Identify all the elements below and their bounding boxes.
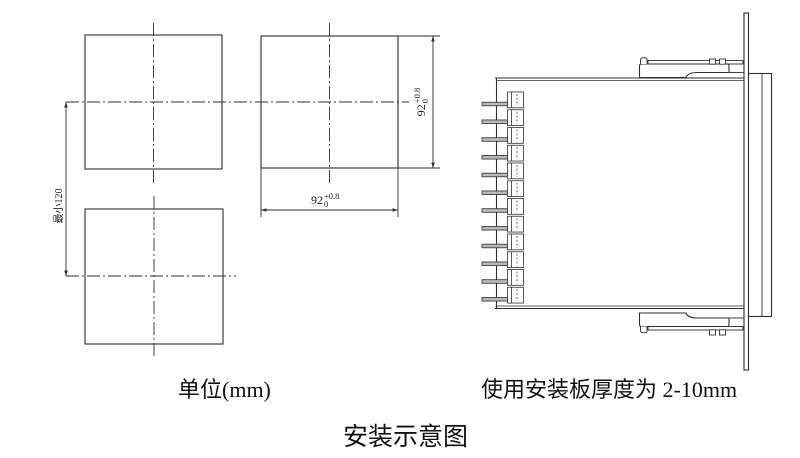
unit-caption: 单位(mm) (178, 372, 271, 404)
bracket-screw-head (641, 327, 648, 333)
terminal-clamp-bar (482, 173, 508, 177)
cutout-spacing-view (64, 23, 409, 356)
bracket-nut (710, 59, 716, 64)
mounting-bracket-bottom (640, 313, 746, 335)
terminal-clamp-bar (482, 155, 508, 159)
terminal-clamp-bar (482, 120, 508, 124)
meter-case (495, 78, 745, 309)
dimension-label-cutout-width: 92 +0.8 0 (311, 192, 339, 208)
installation-diagram: 最小120 92 +0.8 0 92 +0.8 0 单位(mm) 使用安装板厚度… (0, 0, 800, 458)
terminal-unit (508, 145, 524, 161)
dimension-label-cutout-height: 92 +0.8 0 (411, 86, 431, 118)
tolerance-lower: 0 (324, 200, 339, 208)
tolerance-lower: 0 (421, 88, 429, 103)
side-mounting-view (482, 13, 772, 370)
terminal-clamp-bar (482, 244, 508, 248)
bracket-body (640, 313, 730, 327)
mounting-panel-plate (744, 13, 749, 370)
diagram-title: 安装示意图 (343, 417, 468, 453)
terminal-unit (508, 92, 524, 108)
bezel-outline (749, 74, 772, 317)
bracket-nut (710, 330, 716, 335)
bracket-nut (720, 330, 726, 335)
panel-thickness-caption: 使用安装板厚度为 2-10mm (481, 372, 737, 404)
arrowhead-left (261, 208, 267, 212)
arrowhead-right (393, 208, 399, 212)
terminal-unit (508, 252, 524, 268)
dimension-text: 最小120 (54, 189, 66, 224)
bracket-body (640, 64, 730, 78)
dimension-value: 92 (311, 194, 323, 206)
terminal-clamp-bar (482, 102, 508, 106)
dimension-value: 92 (415, 104, 427, 116)
front-bezel (749, 74, 772, 317)
mounting-bracket-top (640, 58, 746, 78)
terminal-clamp-bar (482, 191, 508, 195)
terminal-unit (508, 128, 524, 144)
terminal-clamp-bar (482, 262, 508, 266)
bracket-nut (720, 59, 726, 64)
dimension-tolerance: +0.8 0 (413, 88, 429, 103)
terminal-unit (508, 199, 524, 215)
terminal-unit (508, 234, 524, 250)
dimension-tolerance: +0.8 0 (324, 192, 339, 208)
dimension-label-min-spacing: 最小120 (54, 184, 66, 228)
bracket-screw-head (641, 58, 648, 64)
terminal-unit (508, 216, 524, 232)
arrowhead-up (431, 36, 435, 42)
terminal-clamp-bar (482, 280, 508, 284)
terminal-clamp-bar (482, 297, 508, 301)
terminal-clamp-bar (482, 226, 508, 230)
terminal-clamp-bar (482, 209, 508, 213)
cutout-dimension-view (261, 36, 440, 217)
terminal-unit (508, 181, 524, 197)
terminal-unit (508, 110, 524, 126)
terminal-unit (508, 287, 524, 303)
centerlines (66, 23, 409, 356)
arrowhead-up (64, 102, 68, 108)
terminal-clamp-bar (482, 138, 508, 142)
terminal-unit (508, 270, 524, 286)
terminal-unit (508, 163, 524, 179)
terminal-block (482, 92, 524, 303)
arrowhead-down (64, 271, 68, 277)
arrowhead-down (431, 163, 435, 169)
